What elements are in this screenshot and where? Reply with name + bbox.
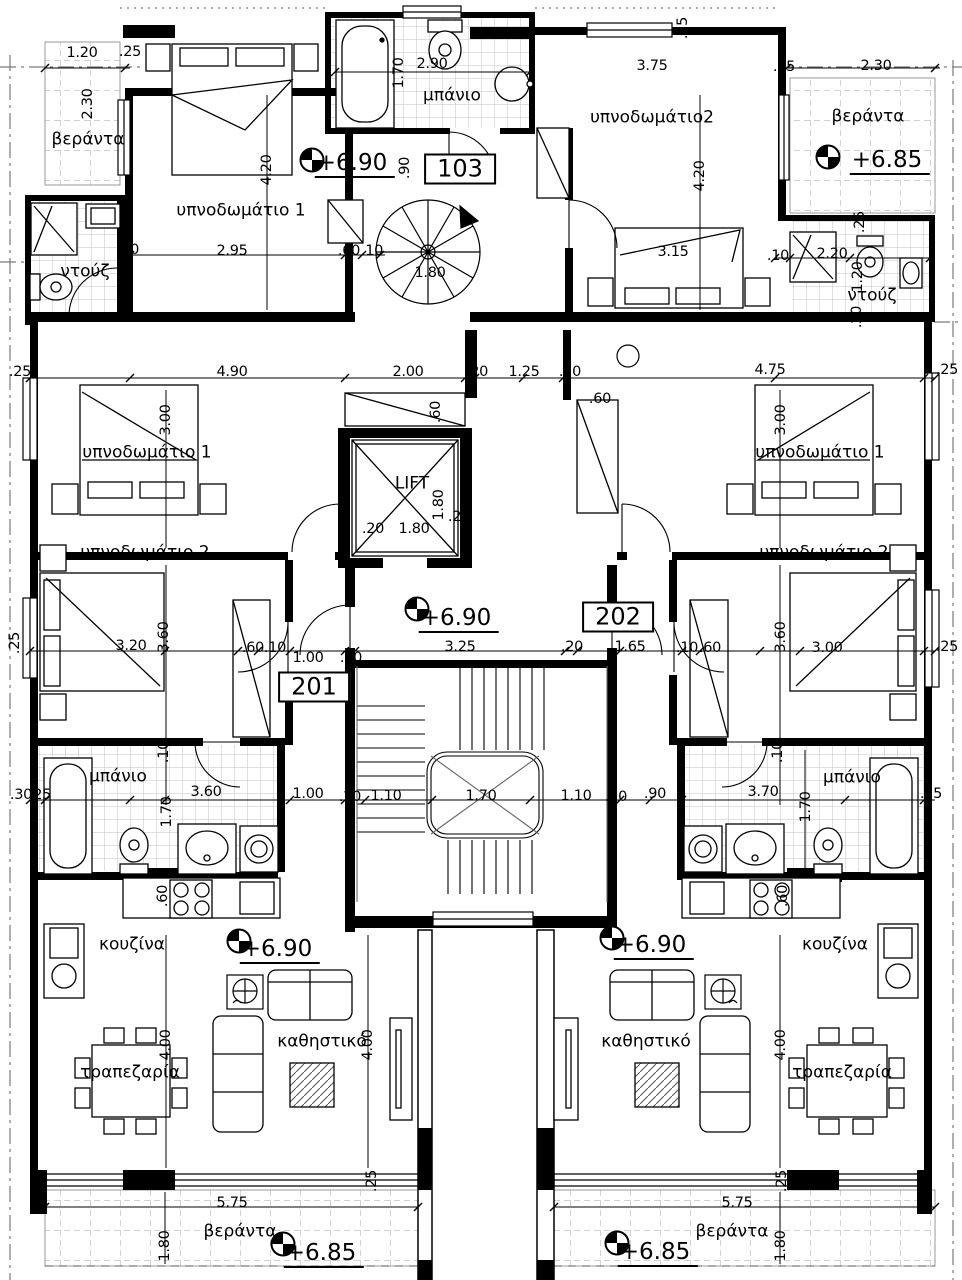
dimension-label: .20 [605, 790, 627, 805]
dimension-label: .60 [429, 401, 444, 423]
room-label-kitchen-202: κουζίνα [802, 937, 868, 954]
dimension-label: 1.25 [508, 365, 539, 380]
dimension-label: 4.90 [216, 365, 247, 380]
dimension-label: 1.70 [465, 789, 496, 804]
dimension-label: 3.75 [636, 59, 667, 74]
level-label: +6.90 [419, 607, 499, 633]
dimension-label: .25 [773, 60, 795, 75]
dimension-label: 1.80 [774, 1230, 789, 1261]
dimension-label: 3.00 [811, 641, 842, 656]
dimension-label: .25 [119, 45, 141, 60]
dimension-label: 3.20 [115, 639, 146, 654]
room-label-veranda-top-right: βεράντα [832, 109, 905, 126]
dimension-label: 3.70 [747, 785, 778, 800]
dimension-label: 2.00 [392, 365, 423, 380]
room-label-veranda-bottom-left: βεράντα [204, 1224, 277, 1241]
dimension-label: 4.00 [159, 1029, 174, 1060]
dimension-label: 2.20 [816, 247, 847, 262]
dimension-label: 1.00 [292, 787, 323, 802]
plan-labels: βεράνταυπνοδωμάτιο 1μπάνιουπνοδωμάτιο2βε… [0, 0, 962, 1280]
dimension-label: 3.60 [774, 621, 789, 652]
dimension-label: 2.30 [81, 88, 96, 119]
dimension-label: .10 [361, 244, 383, 259]
dimension-label: 1.80 [158, 1230, 173, 1261]
dimension-label: .25 [365, 1170, 380, 1192]
dimension-label: .20 [362, 522, 384, 537]
room-label-bedroom2-103: υπνοδωμάτιο2 [590, 110, 714, 127]
dimension-label: .10 [767, 249, 789, 264]
room-label-dining-202: τραπεζαρία [792, 1065, 892, 1082]
level-label: +6.85 [850, 149, 930, 175]
dimension-label: .25 [676, 17, 691, 39]
dimension-label: .60 [338, 244, 360, 259]
room-label-bedroom1-202: υπνοδωμάτιο 1 [755, 445, 884, 462]
dimension-label: .25 [936, 640, 958, 655]
dimension-label: .25 [775, 1170, 790, 1192]
room-label-bedroom2-201: υπνοδωμάτιο 2 [80, 545, 209, 562]
level-label: +6.90 [614, 934, 694, 960]
dimension-label: .10 [771, 741, 786, 763]
level-label: +6.90 [315, 152, 395, 178]
dimension-label: .25 [853, 211, 868, 233]
dimension-label: 3.25 [444, 640, 475, 655]
dimension-label: .20 [561, 640, 583, 655]
dimension-label: .10 [676, 641, 698, 656]
dimension-label: .60 [699, 641, 721, 656]
dimension-label: 1.10 [370, 789, 401, 804]
room-label-kitchen-201: κουζίνα [99, 937, 165, 954]
room-label-bath-103: μπάνιο [423, 88, 481, 105]
dimension-label: 5.75 [721, 1196, 752, 1211]
dimension-label: 1.80 [398, 522, 429, 537]
dimension-label: 3.00 [774, 404, 789, 435]
room-label-bath-202: μπάνιο [823, 770, 881, 787]
dimension-label: .60 [589, 392, 611, 407]
room-label-bedroom1-103: υπνοδωμάτιο 1 [176, 203, 305, 220]
room-label-bedroom1-201: υπνοδωμάτιο 1 [82, 445, 211, 462]
dimension-label: 4.20 [260, 154, 275, 185]
dimension-label: 4.75 [754, 363, 785, 378]
room-label-dining-201: τραπεζαρία [80, 1065, 180, 1082]
room-label-veranda-top-left: βεράντα [52, 132, 125, 149]
dimension-label: .90 [644, 787, 666, 802]
dimension-label: .25 [920, 787, 942, 802]
dimension-label: .25 [936, 363, 958, 378]
dimension-label: 2.95 [216, 244, 247, 259]
dimension-label: 1.65 [614, 640, 645, 655]
dimension-label: 4.00 [361, 1029, 376, 1060]
room-label-bath-201: μπάνιο [89, 769, 147, 786]
dimension-label: 1.70 [799, 791, 814, 822]
dimension-label: .25 [8, 632, 23, 654]
dimension-label: 5.75 [216, 1196, 247, 1211]
room-label-lift: LIFT [395, 476, 429, 493]
unit-number-201: 201 [278, 672, 350, 703]
unit-number-202: 202 [582, 602, 654, 633]
dimension-label: .90 [398, 157, 413, 179]
dimension-label: .25 [29, 788, 51, 803]
dimension-label: .20 [448, 510, 470, 525]
dimension-label: .20 [340, 651, 362, 666]
dimension-label: .10 [264, 641, 286, 656]
dimension-label: 1.10 [560, 789, 591, 804]
dimension-label: 1.80 [414, 266, 445, 281]
dimension-label: 3.60 [157, 621, 172, 652]
dimension-label: .20 [466, 365, 488, 380]
level-label: +6.90 [240, 938, 320, 964]
dimension-label: .20 [850, 306, 865, 328]
room-label-living-201: καθηστικό [277, 1034, 367, 1051]
dimension-label: 1.70 [160, 796, 175, 827]
dimension-label: .20 [339, 790, 361, 805]
dimension-label: .60 [242, 641, 264, 656]
dimension-label: 1.70 [392, 57, 407, 88]
room-label-living-202: καθηστικό [601, 1034, 691, 1051]
dimension-label: 1.20 [66, 46, 97, 61]
dimension-label: .10 [157, 741, 172, 763]
dimension-label: 1.00 [292, 651, 323, 666]
dimension-label: 2.30 [860, 59, 891, 74]
dimension-label: .25 [9, 365, 31, 380]
dimension-label: 3.00 [159, 404, 174, 435]
dimension-label: 1.20 [851, 261, 866, 292]
level-benchmark-icon [816, 145, 841, 170]
room-label-shower-left: ντούζ [60, 264, 109, 281]
dimension-label: .60 [776, 885, 791, 907]
dimension-label: .60 [156, 885, 171, 907]
room-label-bedroom2-202: υπνοδωμάτιο 2 [759, 545, 888, 562]
dimension-label: .20 [559, 365, 581, 380]
room-label-veranda-bottom-right: βεράντα [696, 1224, 769, 1241]
dimension-label: 4.20 [693, 160, 708, 191]
dimension-label: .20 [117, 243, 139, 258]
unit-number-103: 103 [424, 154, 496, 185]
dimension-label: 4.00 [774, 1029, 789, 1060]
dimension-label: 2.90 [416, 57, 447, 72]
level-label: +6.85 [284, 1242, 364, 1268]
dimension-label: 3.15 [657, 245, 688, 260]
dimension-label: 3.60 [190, 785, 221, 800]
level-label: +6.85 [618, 1241, 698, 1267]
floor-plan: βεράνταυπνοδωμάτιο 1μπάνιουπνοδωμάτιο2βε… [0, 0, 962, 1280]
dimension-label: 1.80 [432, 489, 447, 520]
